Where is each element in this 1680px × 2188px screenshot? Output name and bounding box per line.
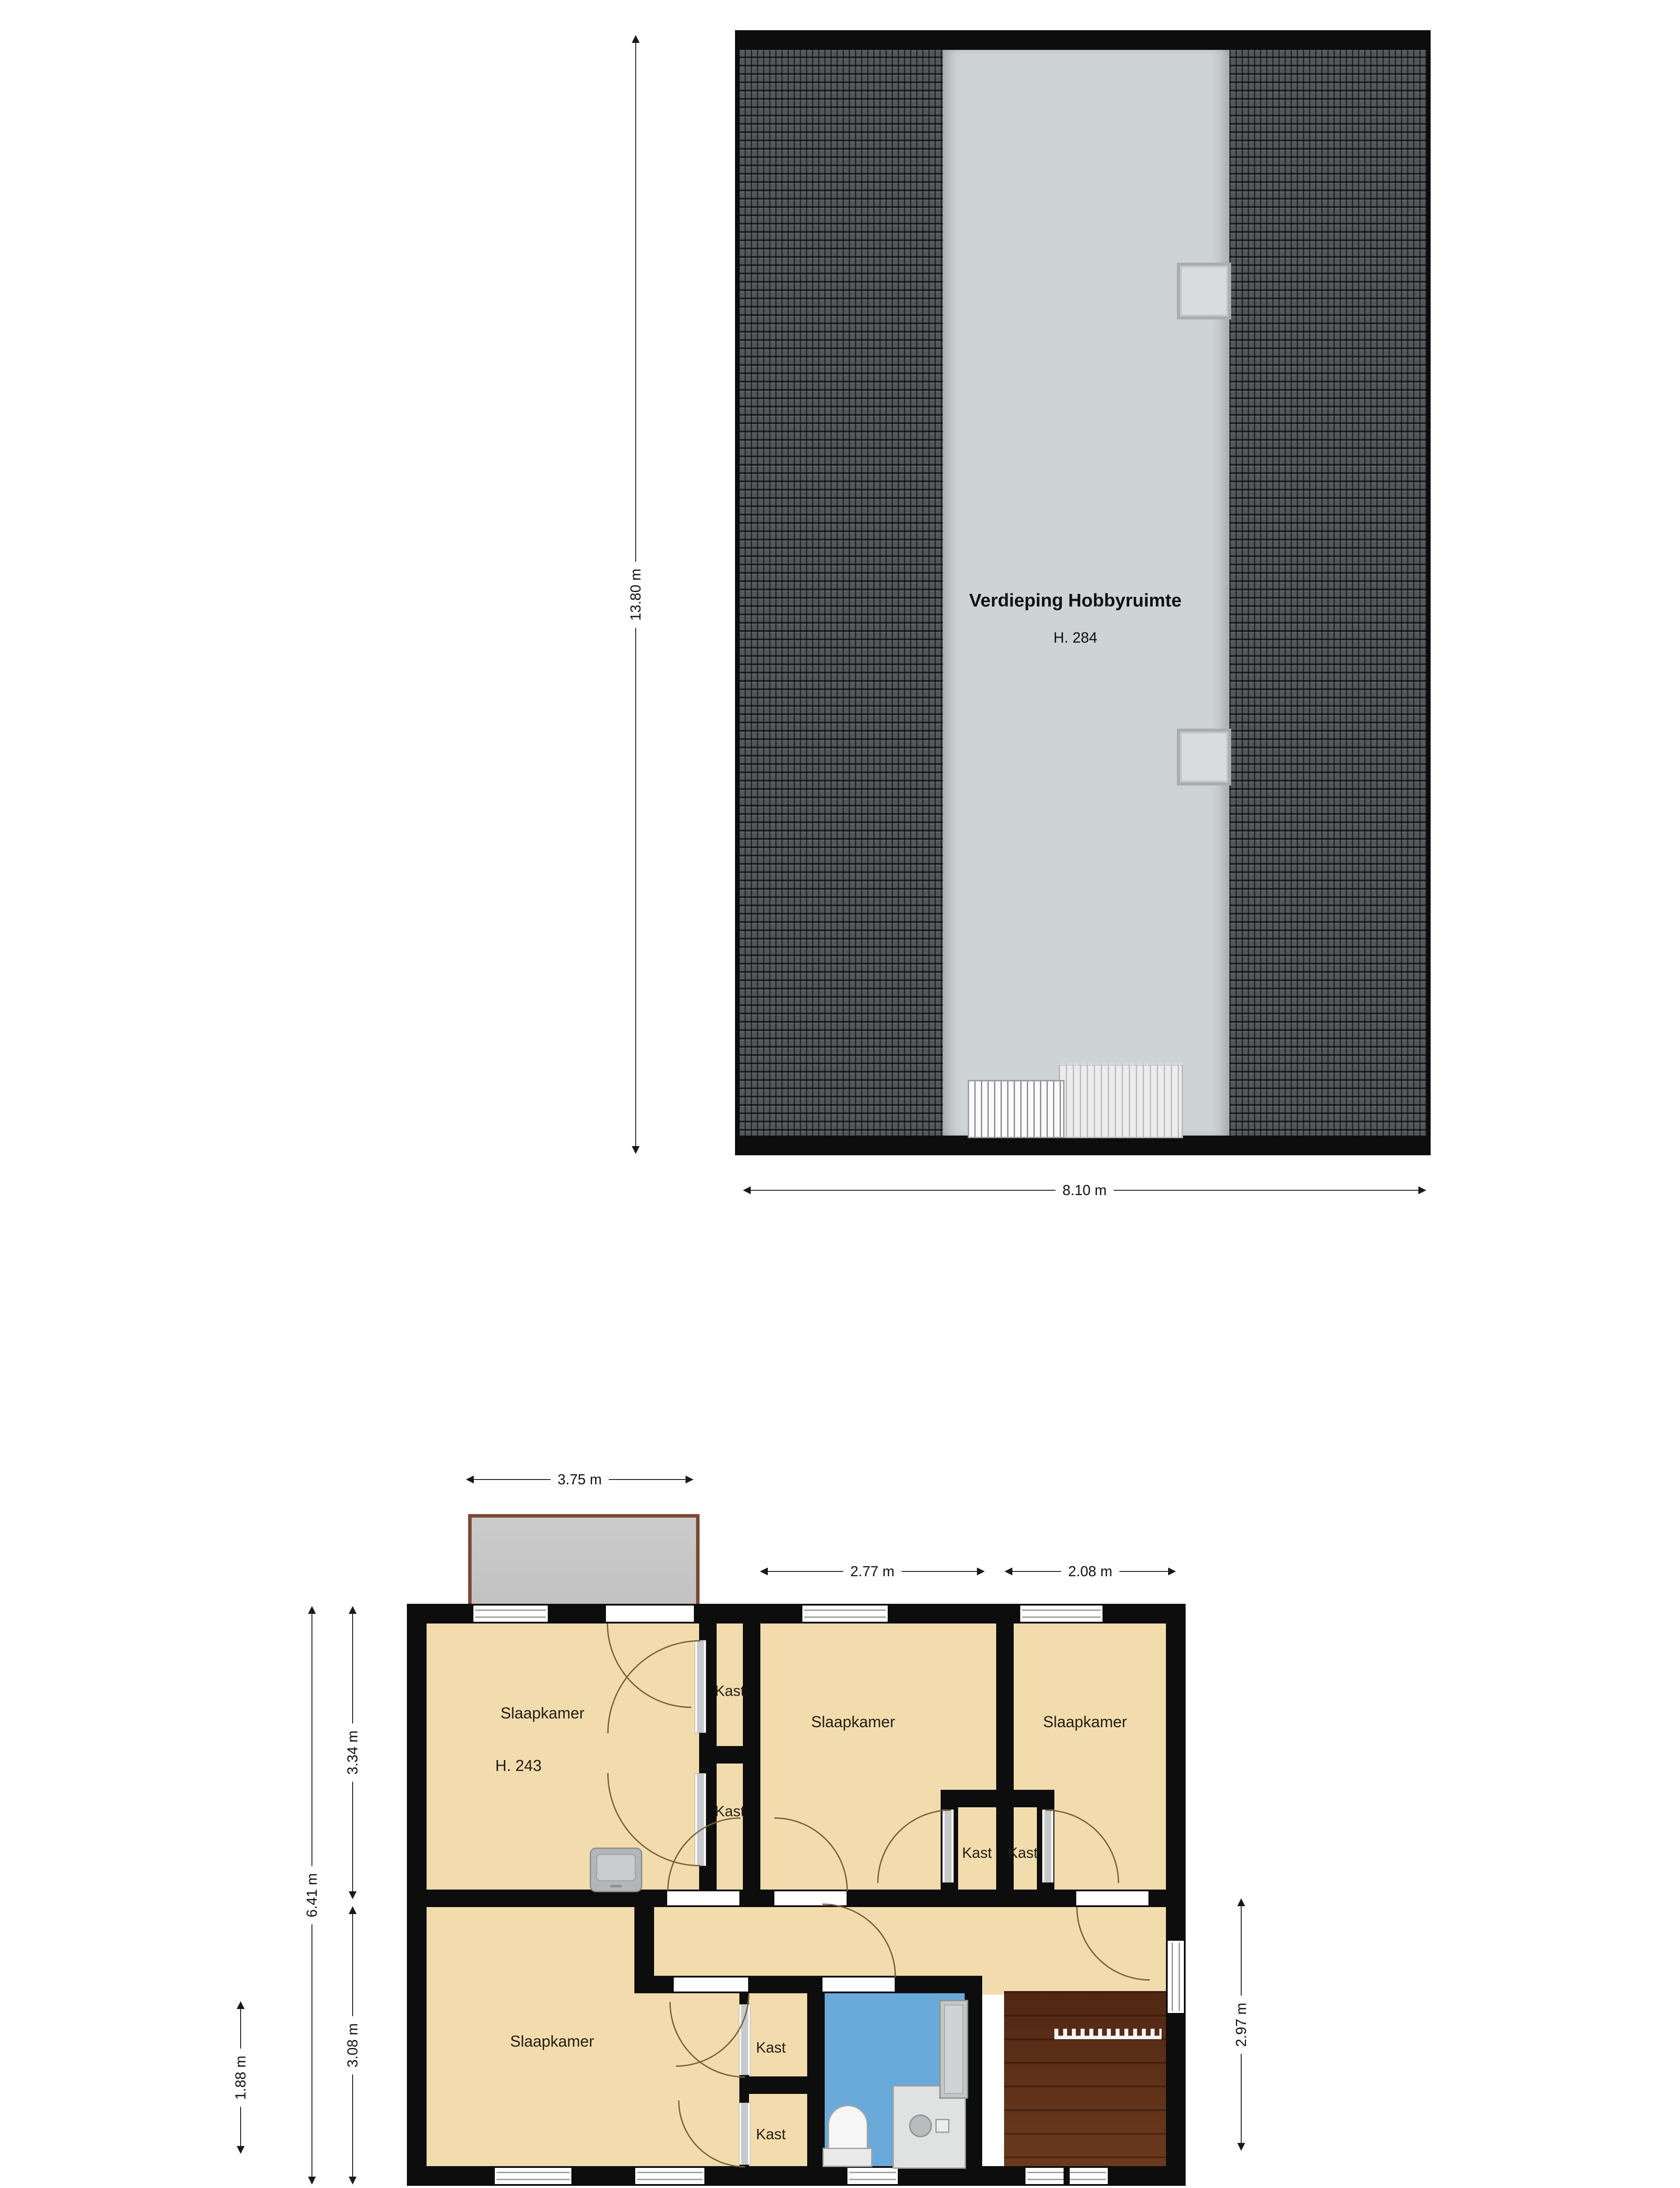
room-height-label: H. 243 — [495, 1757, 542, 1775]
attic-plan: Verdieping Hobbyruimte H. 284 13.80 m 8.… — [0, 0, 1680, 1225]
toilet — [828, 2105, 868, 2153]
door-opening-bl-bedroom — [674, 1978, 748, 1992]
dim-label: 2.97 m — [1232, 1995, 1250, 2054]
door-opening-bathroom — [822, 1978, 895, 1992]
roof-tiles-right — [1229, 48, 1427, 1138]
window — [635, 2168, 704, 2184]
wash-basin — [590, 1848, 642, 1892]
attic-room-title: Verdieping Hobbyruimte — [969, 590, 1181, 611]
wall-tl-kast-right — [743, 1623, 760, 1907]
dim-label: 6.41 m — [303, 1866, 321, 1925]
skylight-window — [1177, 263, 1231, 319]
balcony — [468, 1514, 700, 1607]
shower-control-icon — [935, 2119, 949, 2133]
attic-dim-bottom: 8.10 m — [744, 1190, 1425, 1191]
stairwell-edge — [982, 1995, 1004, 2166]
bathroom-cabinet — [939, 2000, 968, 2099]
door-opening-mid-bedroom — [774, 1891, 847, 1905]
room-label-bedroom-topleft: Slaapkamer — [500, 1704, 584, 1722]
wall-bl-bedroom-right — [634, 1907, 654, 1993]
radiator — [968, 1080, 1064, 1138]
attic-dim-bottom-label: 8.10 m — [1056, 1181, 1114, 1199]
dim-left-outer: 1.88 m — [240, 2002, 241, 2153]
attic-wall-bottom — [735, 1136, 1431, 1155]
attic-wall-left — [735, 30, 739, 1155]
window — [495, 2168, 571, 2184]
door-opening-right-bedroom — [1076, 1891, 1148, 1905]
wall-bottom-kast-divider — [739, 2076, 807, 2094]
room-label-bedroom-middle: Slaapkamer — [811, 1713, 895, 1731]
stairs — [1004, 1991, 1166, 2166]
dim-left-upper: 3.34 m — [352, 1607, 353, 1898]
closet-label: Kast — [756, 2040, 786, 2057]
dim-label: 1.88 m — [231, 2048, 250, 2107]
dim-left-total: 6.41 m — [311, 1607, 312, 2184]
wall-tl-kast-divider — [717, 1746, 743, 1764]
stair-tread-bar — [1054, 2036, 1162, 2039]
floor-plan: Slaapkamer H. 243 Slaapkamer Slaapkamer … — [0, 1444, 1680, 2188]
wall-outer-right — [1166, 1604, 1186, 2186]
attic-height-label: H. 284 — [1053, 630, 1097, 647]
closet-label: Kast — [962, 1845, 992, 1862]
dim-mid-bedroom-width: 2.77 m — [761, 1571, 984, 1572]
toilet-tank — [822, 2148, 872, 2167]
radiator — [1059, 1064, 1183, 1138]
roof-tiles-left — [738, 48, 943, 1138]
balcony-door-opening — [606, 1606, 694, 1622]
dim-right-bedroom-width: 2.08 m — [1005, 1571, 1175, 1572]
window — [847, 2168, 898, 2184]
dim-label: 3.75 m — [551, 1470, 609, 1489]
skylight-window — [1177, 729, 1231, 785]
shower-drain-icon — [909, 2114, 932, 2137]
attic-wall-right — [1426, 30, 1431, 1155]
door-opening-tl-bedroom — [667, 1891, 739, 1905]
dim-label: 3.34 m — [343, 1724, 362, 1782]
window — [1020, 1606, 1102, 1622]
window-divider — [1064, 2168, 1070, 2184]
room-label-bedroom-bottomleft: Slaapkamer — [510, 2032, 594, 2051]
window — [473, 1606, 548, 1622]
dim-label: 2.08 m — [1061, 1562, 1120, 1581]
closet-label: Kast — [715, 1803, 745, 1820]
dim-balcony-width: 3.75 m — [467, 1479, 693, 1480]
stair-treads-icon — [1054, 2029, 1162, 2036]
closet-label: Kast — [756, 2126, 786, 2143]
dim-label: 3.08 m — [343, 2016, 362, 2075]
wall-right-bedroom-left — [996, 1623, 1014, 1907]
attic-dim-left: 13.80 m — [635, 36, 636, 1153]
dim-label: 2.77 m — [843, 1562, 902, 1581]
window — [1168, 1941, 1184, 2013]
dim-right: 2.97 m — [1241, 1899, 1242, 2150]
attic-dim-left-label: 13.80 m — [626, 561, 645, 628]
wall-outer-left — [407, 1604, 427, 2186]
window — [802, 1606, 888, 1622]
closet-label: Kast — [715, 1683, 745, 1700]
room-label-bedroom-right: Slaapkamer — [1043, 1713, 1127, 1731]
dim-left-lower: 3.08 m — [352, 1907, 353, 2184]
closet-label: Kast — [1008, 1845, 1038, 1862]
attic-wall-top — [735, 30, 1431, 50]
wall-bathroom-left — [807, 1993, 825, 2166]
